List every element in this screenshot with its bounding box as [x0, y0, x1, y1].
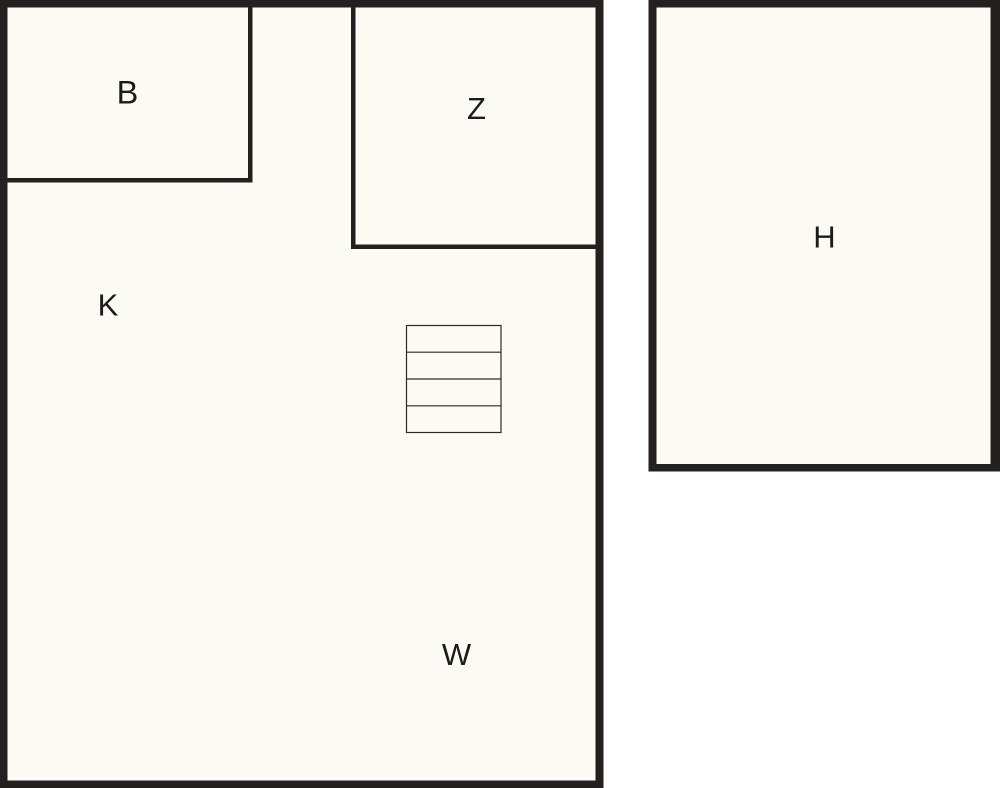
svg-text:H: H: [813, 220, 835, 255]
svg-text:Z: Z: [467, 91, 486, 126]
svg-text:W: W: [442, 637, 472, 672]
svg-text:B: B: [117, 75, 139, 111]
svg-text:K: K: [98, 288, 119, 323]
